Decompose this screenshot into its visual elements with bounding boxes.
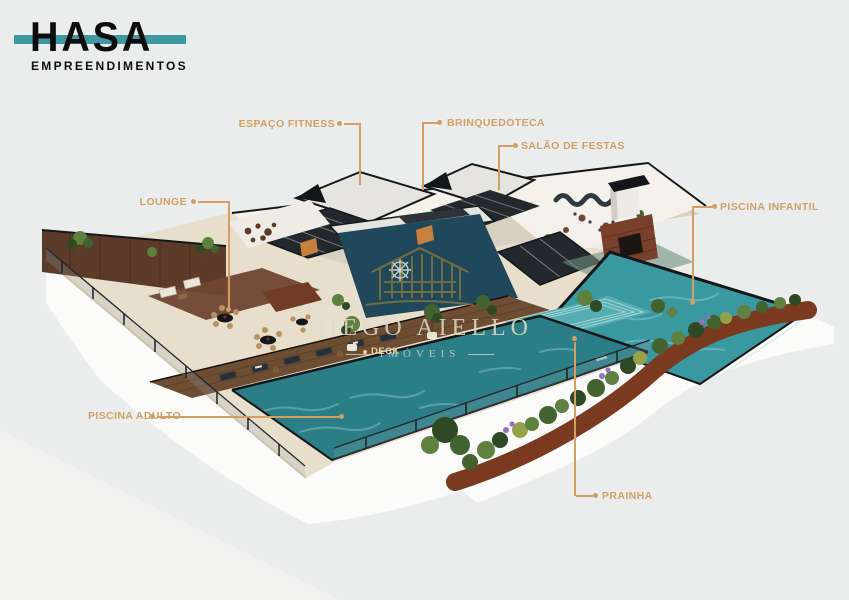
brand-logo: HASA EMPREENDIMENTOS — [14, 16, 194, 94]
callout-dot — [572, 336, 577, 341]
callout-salao-de-festas: SALÃO DE FESTAS — [521, 140, 625, 152]
callout-brinquedoteca: BRINQUEDOTECA — [447, 117, 545, 129]
callout-dot — [363, 350, 367, 354]
callout-piscina-infantil: PISCINA INFANTIL — [720, 201, 819, 213]
callout-deck: DECK — [371, 346, 400, 357]
callout-dot — [191, 199, 196, 204]
callout-dot — [339, 414, 344, 419]
amenities-render-poster: HASA EMPREENDIMENTOS DIEGO AIELLO IMÓVEI… — [0, 0, 849, 600]
brand-name: HASA — [30, 16, 153, 58]
callout-dot — [150, 414, 155, 419]
brand-subtitle: EMPREENDIMENTOS — [31, 59, 188, 73]
callout-prainha: PRAINHA — [602, 490, 653, 502]
callout-dot — [593, 493, 598, 498]
callout-dot — [690, 300, 695, 305]
callout-dot — [337, 121, 342, 126]
ship-wheel-icon — [389, 259, 411, 281]
callout-lounge: LOUNGE — [140, 196, 187, 208]
callout-espaco-fitness: ESPAÇO FITNESS — [239, 118, 335, 130]
callout-dot — [226, 307, 231, 312]
callout-dot — [712, 204, 717, 209]
